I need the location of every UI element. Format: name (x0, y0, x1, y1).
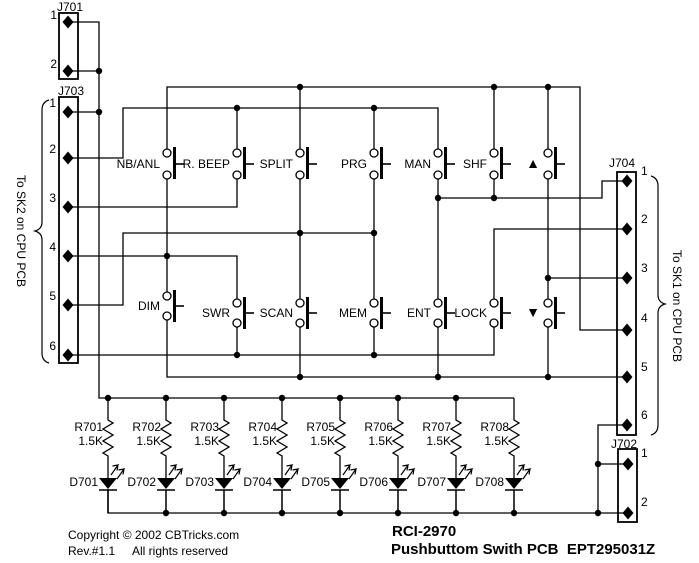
j704-pin-5: 5 (641, 360, 661, 374)
led-ref: D706 (338, 475, 388, 489)
j701-pin-2: 2 (37, 57, 57, 71)
led-ref: D704 (222, 475, 272, 489)
j703-pin-4: 4 (36, 240, 56, 254)
resistor-ref: R702 (111, 420, 161, 434)
j703-note: To SK2 on CPU PCB (14, 156, 28, 306)
led-ref: D707 (396, 475, 446, 489)
led-ref: D708 (454, 475, 504, 489)
led-symbols (99, 465, 530, 513)
j702-pin-2: 2 (641, 495, 661, 509)
led-ref: D702 (106, 475, 156, 489)
resistor-ref: R703 (169, 420, 219, 434)
j704-pin-3: 3 (641, 261, 661, 275)
j704-pin-6: 6 (641, 408, 661, 422)
up-arrow-icon: ▲ (430, 156, 540, 171)
j703-pin-1: 1 (36, 96, 56, 110)
resistor-value: 1.5K (401, 434, 451, 448)
j704-pin-2: 2 (641, 212, 661, 226)
down-arrow-icon: ▼ (430, 305, 540, 320)
resistor-ref: R707 (401, 420, 451, 434)
j704-body (617, 172, 636, 435)
resistor-value: 1.5K (459, 434, 509, 448)
resistor-value: 1.5K (343, 434, 393, 448)
resistor-ref: R701 (53, 420, 103, 434)
led-ref: D705 (280, 475, 330, 489)
resistor-value: 1.5K (285, 434, 335, 448)
resistor-ref: R708 (459, 420, 509, 434)
junction-dots (96, 68, 601, 516)
j703-label: J703 (58, 84, 98, 98)
resistor-ref: R705 (285, 420, 335, 434)
resistor-value: 1.5K (227, 434, 277, 448)
j703-pin-3: 3 (36, 191, 56, 205)
j703-body (59, 97, 78, 363)
j703-brace (35, 100, 49, 363)
model-title: RCI-2970 (392, 523, 456, 540)
board-title: Pushbuttom Swith PCB EPT295031Z (391, 541, 655, 558)
resistor-value: 1.5K (111, 434, 161, 448)
j703-pin-2: 2 (36, 142, 56, 156)
led-ref: D703 (164, 475, 214, 489)
copyright-text: Copyright © 2002 CBTricks.com (68, 528, 239, 542)
resistor-ref: R706 (343, 420, 393, 434)
braces (35, 100, 665, 435)
j702-pin-1: 1 (641, 446, 661, 460)
j704-pin-4: 4 (641, 311, 661, 325)
led-ref: D701 (48, 475, 98, 489)
resistor-value: 1.5K (169, 434, 219, 448)
rights-text: All rights reserved (132, 544, 228, 558)
j704-note: To SK1 on CPU PCB (670, 231, 684, 381)
resistor-ref: R704 (227, 420, 277, 434)
schematic-page: J701 J703 J704 J702 1 2 1 2 3 4 5 6 1 2 … (0, 0, 699, 563)
j701-pin-1: 1 (37, 8, 57, 22)
revision-text: Rev.#1.1 (68, 544, 115, 558)
resistor-value: 1.5K (53, 434, 103, 448)
j704-pin-1: 1 (641, 164, 661, 178)
j701-label: J701 (57, 0, 97, 14)
j703-pin-6: 6 (36, 339, 56, 353)
